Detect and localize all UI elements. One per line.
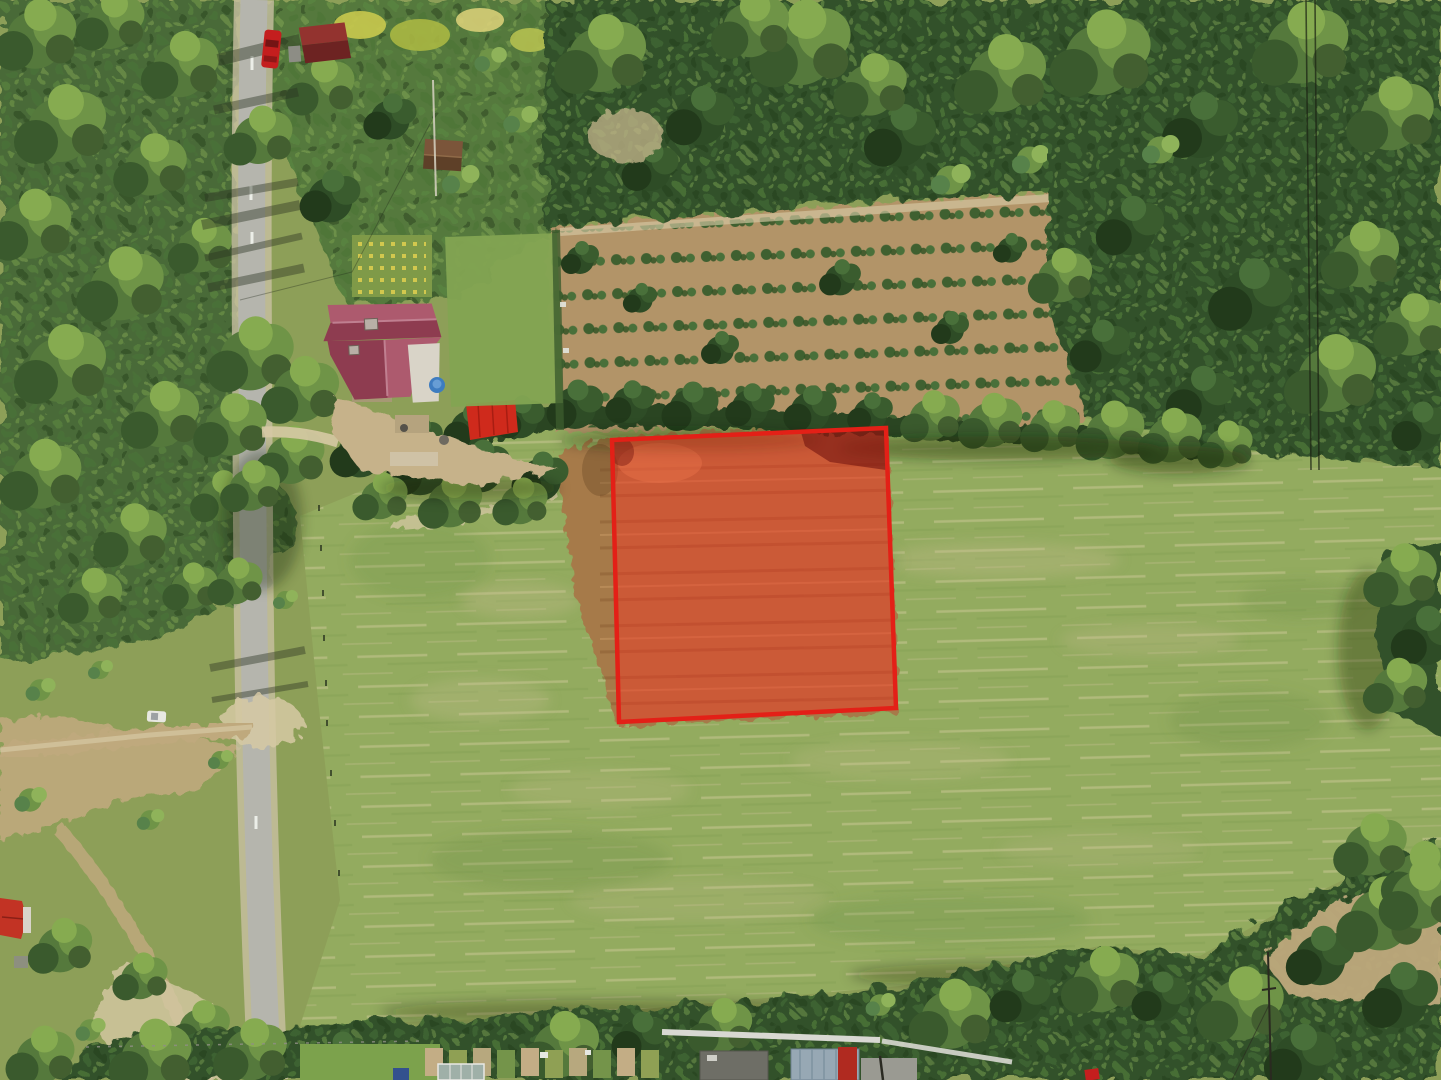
lawn [445,233,563,407]
house-wall [408,343,443,403]
chimney [364,318,378,330]
screenshot-root: Aerial drone view of a rural land parcel… [0,0,1441,1080]
wooden-shed [423,139,463,172]
greenhouse [438,1064,484,1080]
parcel-fill [612,428,896,722]
parcel-overlay [610,427,896,722]
hedge [556,230,560,430]
forest-top-right [1028,0,1441,468]
red-roof-building [838,1047,857,1080]
flower-garden-rows [352,235,432,297]
blue-tarp [393,1068,409,1080]
aerial-photo: Aerial drone view of a rural land parcel… [0,0,1441,1080]
gray-building [861,1058,917,1080]
red-car-bottom [1084,1068,1099,1080]
white-car [147,711,167,723]
chimney-2 [349,345,359,355]
